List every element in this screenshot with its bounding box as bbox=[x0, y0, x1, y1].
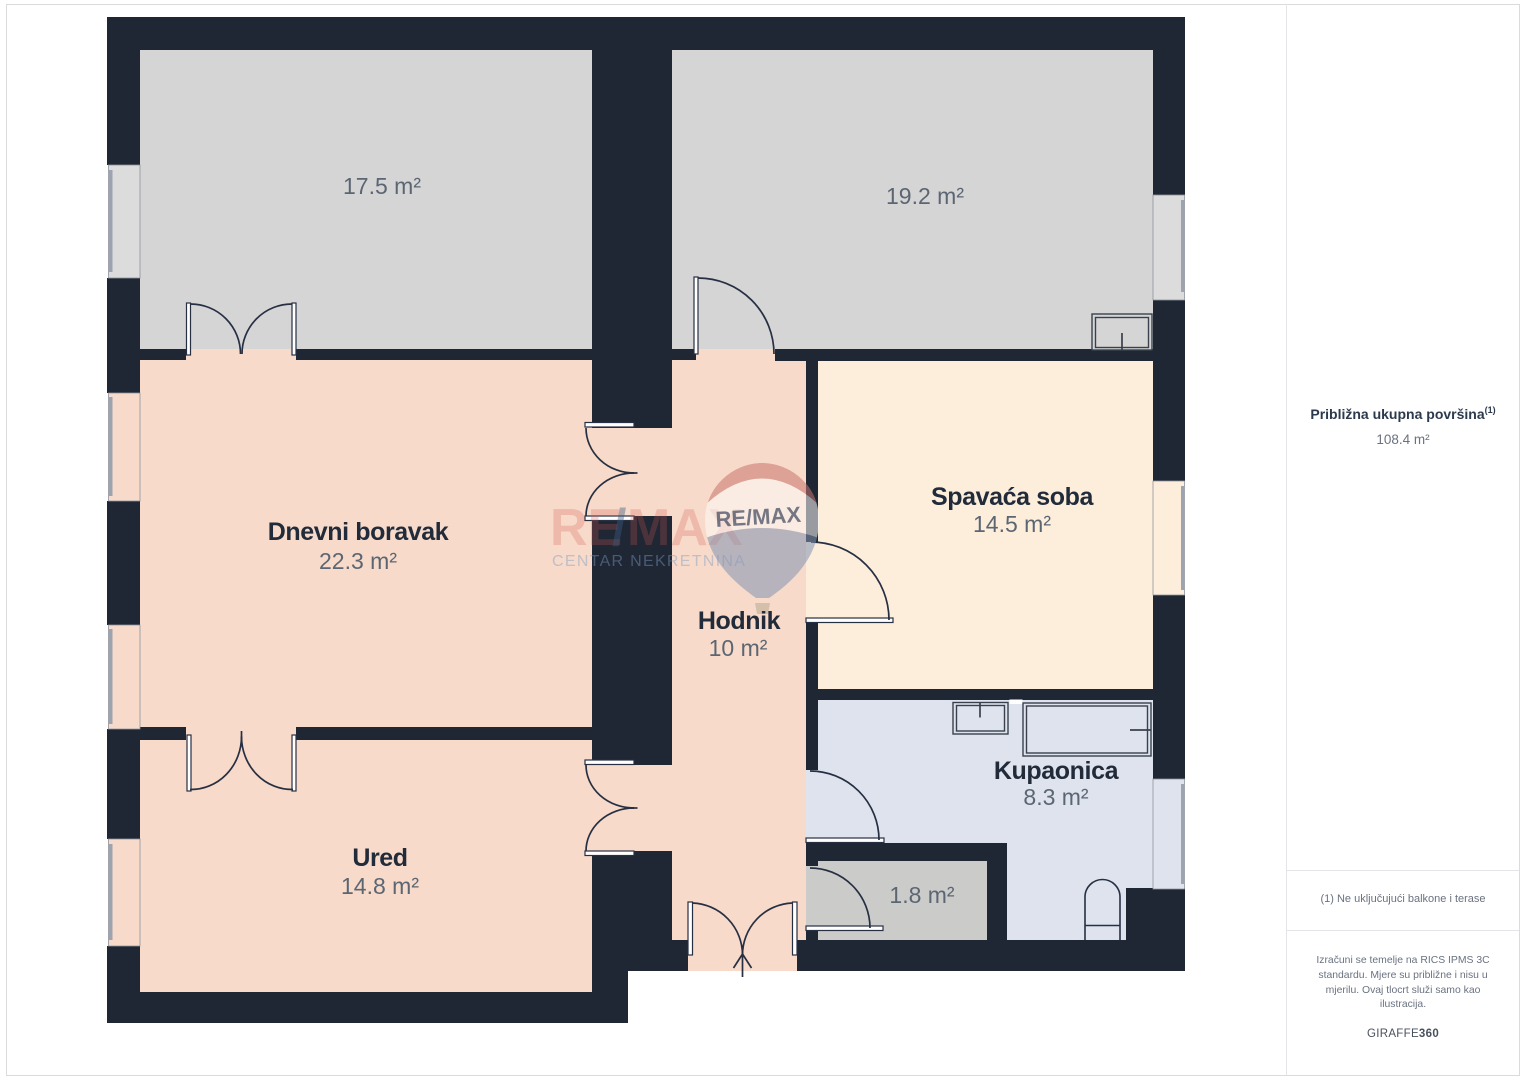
svg-text:Dnevni boravak: Dnevni boravak bbox=[268, 518, 449, 546]
svg-text:Hodnik: Hodnik bbox=[698, 607, 781, 635]
svg-text:1.8 m²: 1.8 m² bbox=[889, 882, 955, 908]
svg-text:Kupaonica: Kupaonica bbox=[994, 757, 1120, 785]
svg-text:/: / bbox=[612, 499, 626, 557]
svg-text:8.3 m²: 8.3 m² bbox=[1023, 784, 1089, 810]
svg-text:10 m²: 10 m² bbox=[709, 635, 768, 661]
svg-text:22.3 m²: 22.3 m² bbox=[319, 548, 397, 574]
svg-text:17.5 m²: 17.5 m² bbox=[343, 173, 421, 199]
svg-text:RE/MAX: RE/MAX bbox=[715, 502, 802, 532]
svg-text:14.5 m²: 14.5 m² bbox=[973, 511, 1051, 537]
svg-text:14.8 m²: 14.8 m² bbox=[341, 873, 419, 899]
svg-text:Ured: Ured bbox=[352, 844, 407, 872]
svg-text:Spavaća soba: Spavaća soba bbox=[931, 483, 1094, 511]
svg-text:19.2 m²: 19.2 m² bbox=[886, 183, 964, 209]
